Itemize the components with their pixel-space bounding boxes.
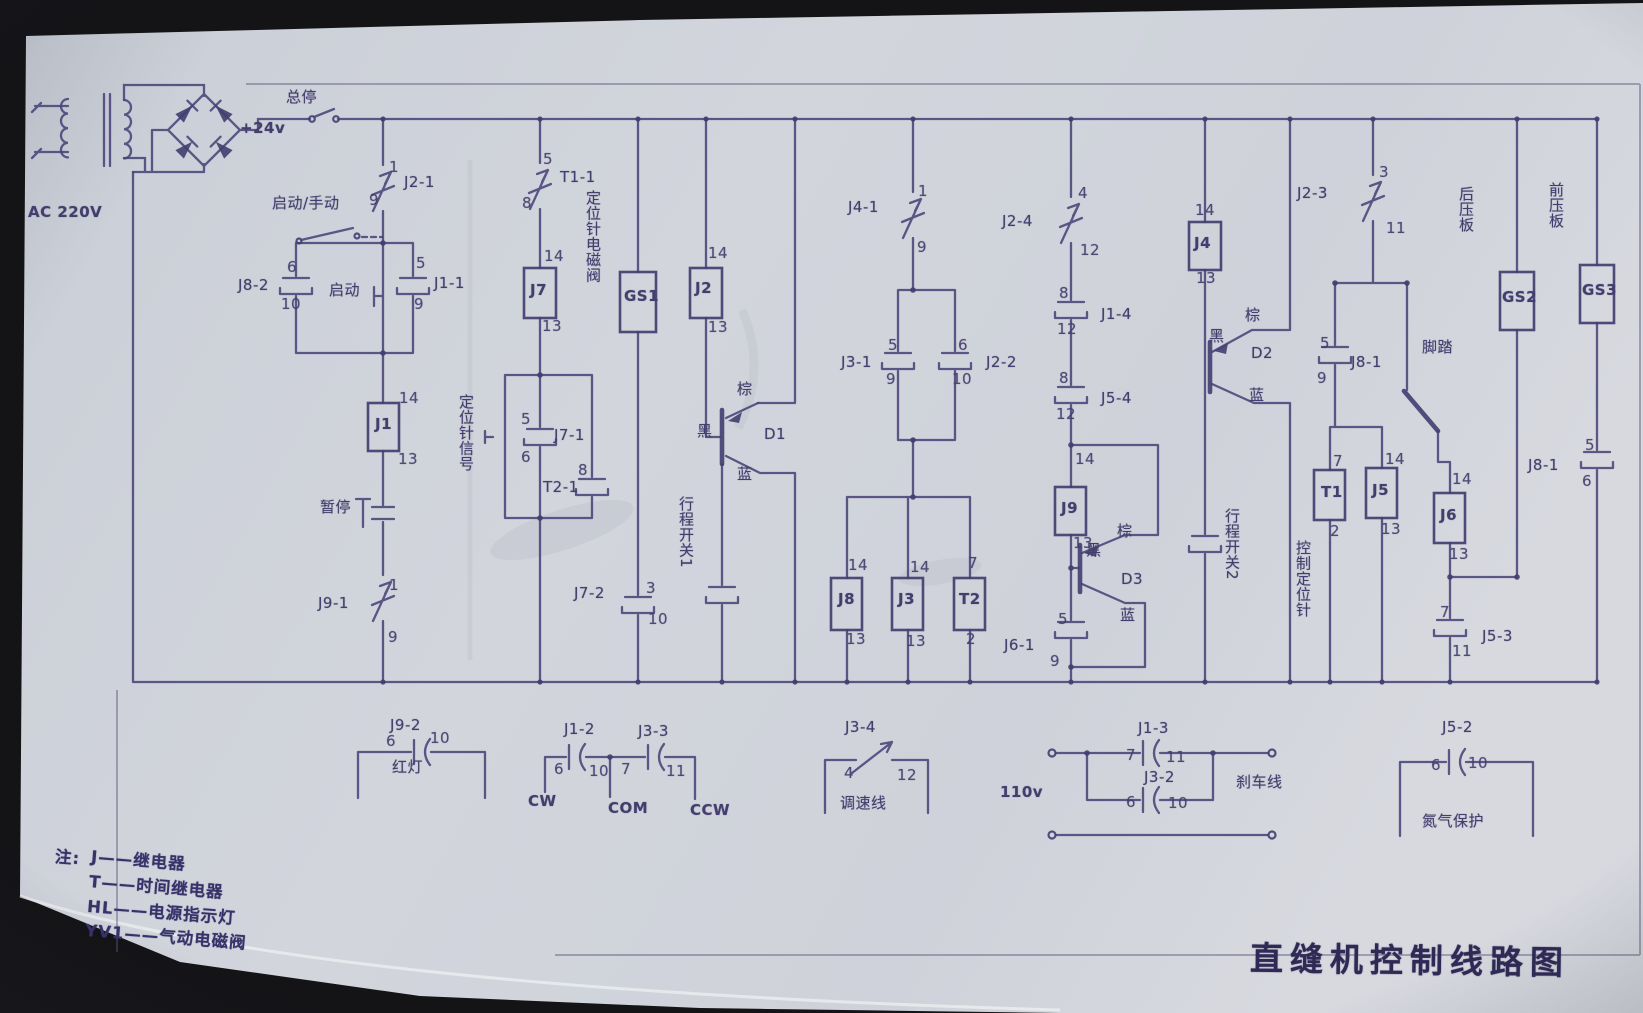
auto-manual-label: 启动/手动 (272, 196, 340, 211)
j2-2-pin-bot: 10 (952, 372, 972, 387)
transistor-d2-label: D2 (1251, 346, 1273, 361)
dc-24v-label: +24v (240, 121, 285, 136)
d1-black-label: 黑 (697, 424, 713, 439)
rear-plate-label: 后压板 (1458, 186, 1473, 233)
j3-4-pin-left: 4 (844, 766, 854, 781)
positioning-valve-label: 定位针电磁阀 (585, 190, 600, 283)
j7-1-pin-top: 5 (521, 412, 531, 427)
j3-1-pin-top: 5 (888, 338, 898, 353)
contact-j3-3-label: J3-3 (638, 724, 669, 739)
j5-4-pin-bot: 12 (1056, 407, 1076, 422)
contact-j1-4-label: J1-4 (1101, 307, 1132, 322)
relay-j2-label: J2 (695, 281, 712, 296)
j5-2-pin-left: 6 (1431, 758, 1441, 773)
d1-blue-label: 蓝 (737, 467, 753, 482)
j8-1-pin-bot: 9 (1317, 371, 1327, 386)
transistor-d1-label: D1 (764, 427, 786, 442)
d2-blue-label: 蓝 (1249, 388, 1265, 403)
d3-brown-label: 棕 (1117, 524, 1133, 539)
j8-1-pin-top: 5 (1320, 336, 1330, 351)
diagram-title: 直缝机控制线路图 (1250, 932, 1571, 984)
j3-3-pin-left: 7 (621, 762, 631, 777)
j8-2-pin-top: 6 (287, 260, 297, 275)
nitrogen-label: 氮气保护 (1422, 814, 1484, 829)
com-label: COM (608, 801, 648, 816)
j2-3-pin-top: 3 (1379, 165, 1389, 180)
j2-2-pin-top: 6 (958, 338, 968, 353)
relay-t2-label: T2 (959, 592, 981, 607)
j2-4-pin-bot: 12 (1080, 243, 1100, 258)
j1-2-pin-right: 10 (589, 764, 609, 779)
contact-j7-2-label: J7-2 (574, 586, 605, 601)
contact-j2-4-label: J2-4 (1002, 214, 1033, 229)
contact-j8-1-label: J8-1 (1351, 355, 1382, 370)
j8-1b-pin-top: 5 (1585, 438, 1595, 453)
j9-1-pin-bot: 9 (388, 630, 398, 645)
j9-2-pin-left: 6 (386, 734, 396, 749)
contact-j2-1-label: J2-1 (404, 175, 435, 190)
j4-1-pin-top: 1 (918, 184, 928, 199)
d2-black-label: 黑 (1209, 329, 1225, 344)
start-button-label: 启动 (329, 283, 360, 298)
j6-1-pin-top: 5 (1058, 612, 1068, 627)
j2-pin-top: 14 (708, 246, 728, 261)
j1-pin-bot: 13 (398, 452, 418, 467)
t2-1-pin-top: 8 (578, 463, 588, 478)
j3-4-pin-right: 12 (897, 768, 917, 783)
j2-3-pin-bot: 11 (1386, 221, 1406, 236)
schematic-photo: AC 220V+24v总停启动/手动J2-119J8-2610启动J1-1591… (0, 0, 1643, 1013)
j3-2-pin-left: 6 (1126, 795, 1136, 810)
contact-j1-1-label: J1-1 (434, 276, 465, 291)
j9-pin-top: 14 (1075, 452, 1095, 467)
legend-notes: 注: J——继电器 T——时间继电器 HL——电源指示灯 YV1——气动电磁阀 (48, 842, 253, 957)
lamp-gs1-label: GS1 (624, 289, 659, 304)
j3-2-pin-right: 10 (1168, 796, 1188, 811)
contact-j1-3-label: J1-3 (1138, 721, 1169, 736)
foot-pedal-label: 脚踏 (1422, 340, 1453, 355)
contact-j7-1-label: J7-1 (554, 428, 585, 443)
transistor-d3-label: D3 (1121, 572, 1143, 587)
j7-pin-bot: 13 (542, 319, 562, 334)
j1-1-pin-top: 5 (416, 256, 426, 271)
contact-j9-1-label: J9-1 (318, 596, 349, 611)
relay-j9-label: J9 (1061, 501, 1078, 516)
relay-j5-label: J5 (1372, 483, 1389, 498)
relay-t1-label: T1 (1321, 485, 1343, 500)
j1-3-pin-left: 7 (1126, 748, 1136, 763)
j6-1-pin-bot: 9 (1050, 654, 1060, 669)
d2-brown-label: 棕 (1245, 308, 1261, 323)
j3-pin-top: 14 (910, 560, 930, 575)
contact-j6-1-label: J6-1 (1004, 638, 1035, 653)
lamp-gs2-label: GS2 (1502, 290, 1537, 305)
contact-j5-2-label: J5-2 (1442, 720, 1473, 735)
j5-4-pin-top: 8 (1059, 371, 1069, 386)
contact-j8-2-label: J8-2 (238, 278, 269, 293)
j1-4-pin-top: 8 (1059, 286, 1069, 301)
j8-1b-pin-bot: 6 (1582, 474, 1592, 489)
j4-1-pin-bot: 9 (917, 240, 927, 255)
contact-j3-4-label: J3-4 (845, 720, 876, 735)
contact-j5-4-label: J5-4 (1101, 391, 1132, 406)
j5-2-pin-right: 10 (1468, 756, 1488, 771)
j5-pin-top: 14 (1385, 452, 1405, 467)
j7-pin-top: 14 (544, 249, 564, 264)
j1-4-pin-bot: 12 (1057, 322, 1077, 337)
j5-3-pin-top: 7 (1440, 605, 1450, 620)
j7-1-pin-bot: 6 (521, 450, 531, 465)
t1-1-pin-bot: 8 (522, 196, 532, 211)
j9-1-pin-top: 1 (389, 578, 399, 593)
ccw-label: CCW (690, 803, 730, 818)
master-stop-label: 总停 (286, 90, 317, 105)
contact-j9-2-label: J9-2 (390, 718, 421, 733)
legend-prefix: 注: (54, 845, 81, 872)
t2-pin-bot: 2 (966, 632, 976, 647)
relay-j3-label: J3 (898, 592, 915, 607)
positioning-signal-label: 定位针信号 (458, 394, 473, 472)
contact-j1-2-label: J1-2 (564, 722, 595, 737)
j7-2-pin-bot: 10 (648, 612, 668, 627)
j1-pin-top: 14 (399, 391, 419, 406)
j6-pin-bot: 13 (1449, 547, 1469, 562)
d3-black-label: 黑 (1086, 543, 1102, 558)
contact-j3-1-label: J3-1 (841, 355, 872, 370)
j2-pin-bot: 13 (708, 320, 728, 335)
j7-2-pin-top: 3 (646, 581, 656, 596)
contact-j3-2-label: J3-2 (1144, 770, 1175, 785)
contact-t1-1-label: T1-1 (560, 170, 596, 185)
j8-2-pin-bot: 10 (281, 297, 301, 312)
lamp-gs3-label: GS3 (1582, 283, 1617, 298)
v110-label: 110v (1000, 785, 1043, 800)
j2-1-pin-top: 1 (389, 160, 399, 175)
j1-2-pin-left: 6 (554, 762, 564, 777)
relay-j1-label: J1 (375, 417, 392, 432)
contact-j2-3-label: J2-3 (1297, 186, 1328, 201)
t1-1-pin-top: 5 (543, 152, 553, 167)
j1-1-pin-bot: 9 (414, 297, 424, 312)
speed-line-label: 调速线 (840, 796, 887, 811)
j3-1-pin-bot: 9 (886, 372, 896, 387)
limit-switch1-label: 行程开关1 (678, 496, 693, 568)
j4-pin-bot: 13 (1196, 271, 1216, 286)
j4-pin-top: 14 (1195, 203, 1215, 218)
j3-pin-bot: 13 (906, 634, 926, 649)
j2-1-pin-bot: 9 (369, 193, 379, 208)
j2-4-pin-top: 4 (1078, 186, 1088, 201)
contact-j4-1-label: J4-1 (848, 200, 879, 215)
red-lamp-label: 红灯 (392, 760, 423, 775)
control-pin-label: 控制定位针 (1295, 540, 1310, 618)
t1-pin-top: 7 (1333, 454, 1343, 469)
d3-blue-label: 蓝 (1120, 608, 1136, 623)
brake-line-label: 刹车线 (1236, 775, 1283, 790)
j8-pin-top: 14 (848, 558, 868, 573)
cw-label: CW (528, 794, 557, 809)
front-plate-label: 前压板 (1548, 182, 1563, 229)
relay-j4-label: J4 (1194, 236, 1211, 251)
relay-j7-label: J7 (530, 283, 547, 298)
j5-3-pin-bot: 11 (1452, 644, 1472, 659)
relay-j6-label: J6 (1440, 508, 1457, 523)
contact-j8-1b-label: J8-1 (1528, 458, 1559, 473)
j5-pin-bot: 13 (1381, 522, 1401, 537)
limit-switch2-label: 行程开关2 (1224, 508, 1239, 580)
j6-pin-top: 14 (1452, 472, 1472, 487)
d1-brown-label: 棕 (737, 382, 753, 397)
contact-j2-2-label: J2-2 (986, 355, 1017, 370)
j3-3-pin-right: 11 (666, 764, 686, 779)
t1-pin-bot: 2 (1330, 524, 1340, 539)
ac-source-label: AC 220V (28, 205, 102, 220)
pause-button-label: 暂停 (320, 500, 351, 515)
contact-j5-3-label: J5-3 (1482, 629, 1513, 644)
contact-t2-1-label: T2-1 (543, 480, 579, 495)
j1-3-pin-right: 11 (1166, 750, 1186, 765)
j9-2-pin-right: 10 (430, 731, 450, 746)
t2-pin-top: 7 (968, 556, 978, 571)
relay-j8-label: J8 (838, 592, 855, 607)
j8-pin-bot: 13 (846, 632, 866, 647)
